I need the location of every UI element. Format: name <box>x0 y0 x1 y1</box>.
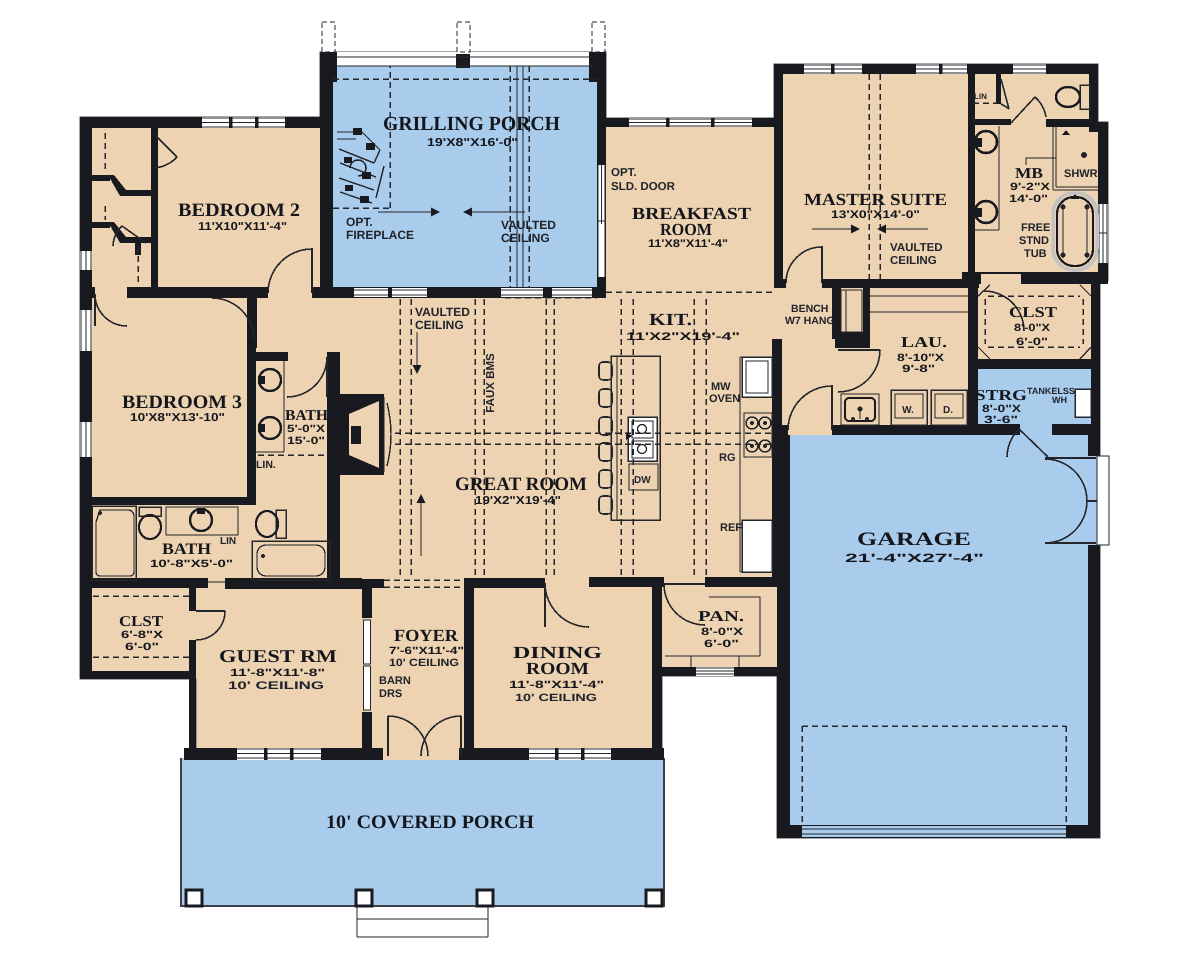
svg-text:LIN: LIN <box>220 536 236 547</box>
svg-text:MASTER SUITE: MASTER SUITE <box>804 190 947 209</box>
svg-text:11'-8"X11'-8": 11'-8"X11'-8" <box>230 667 325 679</box>
svg-text:11'X2"X19'-4": 11'X2"X19'-4" <box>626 331 740 343</box>
svg-text:11'X8"X11'-4": 11'X8"X11'-4" <box>648 238 728 250</box>
svg-text:STRG: STRG <box>975 388 1027 404</box>
svg-text:BATH: BATH <box>285 408 328 424</box>
svg-text:VAULTED: VAULTED <box>501 218 556 232</box>
svg-text:WH: WH <box>1052 395 1067 405</box>
svg-text:SLD. DOOR: SLD. DOOR <box>611 181 676 193</box>
svg-text:LAU.: LAU. <box>901 335 947 351</box>
svg-text:MB: MB <box>1015 166 1043 182</box>
svg-text:10' CEILING: 10' CEILING <box>228 680 324 692</box>
svg-text:W.: W. <box>902 405 914 416</box>
svg-text:BEDROOM 2: BEDROOM 2 <box>178 200 300 221</box>
svg-text:KIT.: KIT. <box>649 310 692 329</box>
svg-text:10' CEILING: 10' CEILING <box>389 657 459 669</box>
svg-text:STND: STND <box>1019 235 1049 247</box>
svg-text:DRS: DRS <box>379 688 402 700</box>
svg-text:SHWR: SHWR <box>1064 168 1098 180</box>
svg-text:15'-0": 15'-0" <box>287 435 325 447</box>
svg-text:BARN: BARN <box>379 675 411 687</box>
svg-text:6'-0": 6'-0" <box>1016 336 1048 348</box>
svg-text:14'-0": 14'-0" <box>1009 193 1048 205</box>
svg-text:FAUX BMS: FAUX BMS <box>485 353 497 413</box>
svg-text:BENCH: BENCH <box>791 303 828 315</box>
svg-text:VAULTED: VAULTED <box>415 305 470 319</box>
svg-text:FOYER: FOYER <box>394 626 459 645</box>
svg-text:BATH: BATH <box>162 541 212 558</box>
svg-text:10'X8"X13'-10": 10'X8"X13'-10" <box>130 412 225 424</box>
svg-text:7'-6"X11'-4": 7'-6"X11'-4" <box>389 645 464 657</box>
svg-text:11'X10"X11'-4": 11'X10"X11'-4" <box>198 221 287 233</box>
svg-text:19'X8"X16'-0": 19'X8"X16'-0" <box>427 137 518 149</box>
svg-text:TANKELSS: TANKELSS <box>1027 386 1075 396</box>
svg-text:OVEN: OVEN <box>709 393 740 405</box>
svg-text:10'-8"X5'-0": 10'-8"X5'-0" <box>150 558 233 570</box>
svg-text:TUB: TUB <box>1024 248 1047 260</box>
svg-text:OPT.: OPT. <box>611 167 637 179</box>
svg-text:3'-6": 3'-6" <box>984 414 1018 426</box>
svg-text:GREAT ROOM: GREAT ROOM <box>455 474 587 495</box>
svg-text:BEDROOM 3: BEDROOM 3 <box>122 392 242 413</box>
svg-text:ROOM: ROOM <box>660 220 712 239</box>
svg-text:DW: DW <box>634 475 651 486</box>
svg-text:ROOM: ROOM <box>526 659 589 678</box>
svg-text:13'X0"X14'-0": 13'X0"X14'-0" <box>831 209 920 221</box>
svg-text:FIREPLACE: FIREPLACE <box>346 228 414 242</box>
svg-text:10' COVERED PORCH: 10' COVERED PORCH <box>326 812 534 833</box>
svg-text:GARAGE: GARAGE <box>857 529 971 550</box>
svg-text:W7 HANG.: W7 HANG. <box>785 315 838 327</box>
svg-text:CEILING: CEILING <box>415 318 464 332</box>
svg-text:8'-0"X: 8'-0"X <box>1014 322 1050 334</box>
svg-text:VAULTED: VAULTED <box>890 242 943 254</box>
svg-text:GRILLING PORCH: GRILLING PORCH <box>383 113 560 135</box>
svg-text:LIN: LIN <box>974 92 987 101</box>
svg-text:19'X2"X19'-4": 19'X2"X19'-4" <box>475 495 561 507</box>
svg-text:GUEST RM: GUEST RM <box>219 646 337 666</box>
svg-text:PAN.: PAN. <box>698 609 744 625</box>
svg-text:9'-8": 9'-8" <box>902 363 935 375</box>
svg-text:5'-0"X: 5'-0"X <box>287 423 325 435</box>
svg-text:OPT.: OPT. <box>346 215 373 229</box>
svg-text:CLST: CLST <box>119 614 163 630</box>
svg-text:21'-4"X27'-4": 21'-4"X27'-4" <box>845 551 984 565</box>
svg-text:11'-8"X11'-4": 11'-8"X11'-4" <box>509 679 604 691</box>
svg-text:6'-8"X: 6'-8"X <box>121 629 163 641</box>
svg-text:LIN.: LIN. <box>256 459 276 471</box>
svg-text:9'-2"X: 9'-2"X <box>1010 181 1050 193</box>
svg-text:FREE: FREE <box>1021 222 1050 234</box>
svg-text:10' CEILING: 10' CEILING <box>515 692 597 704</box>
svg-text:REF: REF <box>720 522 742 534</box>
svg-text:D.: D. <box>943 405 953 416</box>
svg-text:6'-0": 6'-0" <box>125 641 159 653</box>
svg-text:CLST: CLST <box>1009 305 1057 321</box>
svg-text:CEILING: CEILING <box>501 231 550 245</box>
svg-text:MW: MW <box>711 381 731 393</box>
svg-text:8'-0"X: 8'-0"X <box>701 626 743 638</box>
svg-text:CEILING: CEILING <box>890 255 937 267</box>
svg-text:RG: RG <box>719 452 736 464</box>
svg-text:6'-0": 6'-0" <box>704 638 739 650</box>
